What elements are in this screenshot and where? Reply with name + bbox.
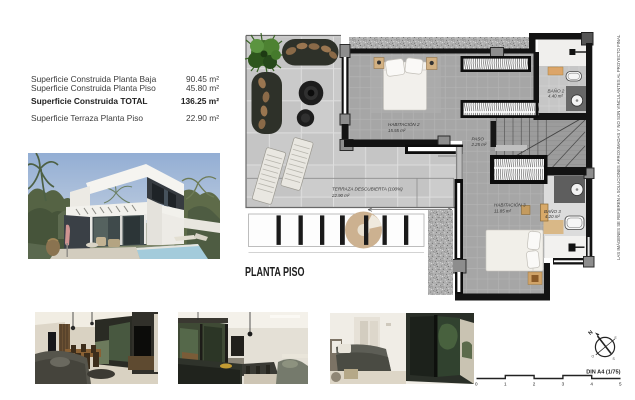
svg-text:22.90 m²: 22.90 m²: [331, 193, 350, 198]
svg-text:PASO: PASO: [472, 137, 485, 142]
svg-text:O: O: [592, 355, 595, 359]
svg-text:3: 3: [562, 382, 565, 387]
svg-text:1: 1: [504, 382, 507, 387]
svg-text:5: 5: [619, 382, 622, 387]
svg-text:4: 4: [590, 382, 593, 387]
svg-text:DIN A4 (1/75): DIN A4 (1/75): [586, 370, 620, 376]
svg-text:S: S: [613, 357, 616, 361]
svg-text:15.55 m²: 15.55 m²: [388, 128, 406, 133]
svg-text:TERRAZA DESCUBIERTA (100%): TERRAZA DESCUBIERTA (100%): [332, 187, 403, 192]
svg-text:N: N: [588, 330, 595, 337]
svg-text:HABITACIÓN 2: HABITACIÓN 2: [388, 121, 420, 127]
svg-text:HABITACIÓN 3: HABITACIÓN 3: [494, 202, 526, 208]
svg-text:11.85 m²: 11.85 m²: [494, 208, 512, 213]
svg-text:2.25 m²: 2.25 m²: [471, 142, 487, 147]
svg-text:4.40 m²: 4.40 m²: [548, 94, 563, 99]
svg-text:0: 0: [475, 382, 478, 387]
svg-text:2: 2: [533, 382, 536, 387]
svg-text:4.20 m²: 4.20 m²: [545, 214, 560, 219]
svg-text:E: E: [615, 336, 618, 340]
